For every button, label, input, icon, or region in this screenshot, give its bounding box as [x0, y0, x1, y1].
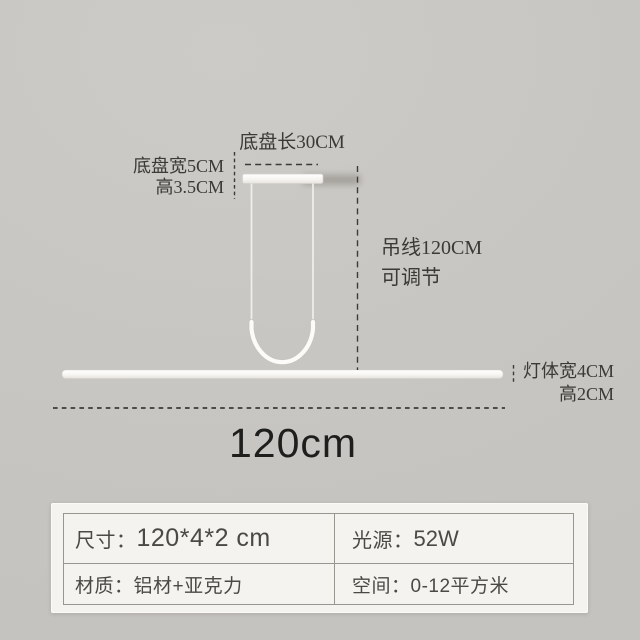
spec-size-value: 120*4*2 cm	[137, 524, 271, 553]
spec-panel: 尺寸： 120*4*2 cm 光源： 52W 材质： 铝材+亚克力 空间： 0-…	[51, 503, 588, 613]
spec-cell-material: 材质： 铝材+亚克力	[64, 564, 335, 604]
spec-power-value: 52W	[414, 526, 459, 552]
u-tube-outline	[252, 322, 314, 362]
spec-cell-space: 空间： 0-12平方米	[335, 564, 573, 604]
suspension-wire-label: 吊线120CM 可调节	[381, 233, 482, 293]
base-plate-length-label: 底盘长30CM	[229, 132, 355, 154]
spec-space-label: 空间：	[352, 571, 411, 598]
ceiling-plate	[243, 174, 324, 184]
suspension-wire-length-label: 吊线120CM	[381, 233, 482, 263]
spec-cell-power: 光源： 52W	[335, 514, 573, 564]
spec-table: 尺寸： 120*4*2 cm 光源： 52W 材质： 铝材+亚克力 空间： 0-…	[63, 513, 574, 605]
spec-cell-size: 尺寸： 120*4*2 cm	[64, 514, 335, 564]
lamp-body-height-label: 高2CM	[523, 383, 614, 406]
spec-size-label: 尺寸：	[75, 524, 137, 553]
spec-space-value: 0-12平方米	[411, 571, 510, 598]
spec-material-label: 材质：	[75, 571, 134, 598]
suspension-wire-note-label: 可调节	[381, 263, 482, 293]
base-plate-width-label: 底盘宽5CM	[133, 156, 224, 177]
lamp-body-size-label: 灯体宽4CM 高2CM	[523, 360, 614, 406]
overall-length-label: 120cm	[173, 420, 413, 467]
spec-power-label: 光源：	[352, 524, 414, 553]
lamp-body-bar	[62, 370, 503, 379]
base-plate-size-label: 底盘宽5CM 高3.5CM	[133, 156, 224, 198]
base-plate-height-label: 高3.5CM	[133, 177, 224, 198]
spec-material-value: 铝材+亚克力	[134, 571, 243, 598]
lamp-body-width-label: 灯体宽4CM	[523, 360, 614, 383]
product-diagram-page: 底盘长30CM 底盘宽5CM 高3.5CM 吊线120CM 可调节 灯体宽4CM…	[0, 0, 640, 640]
